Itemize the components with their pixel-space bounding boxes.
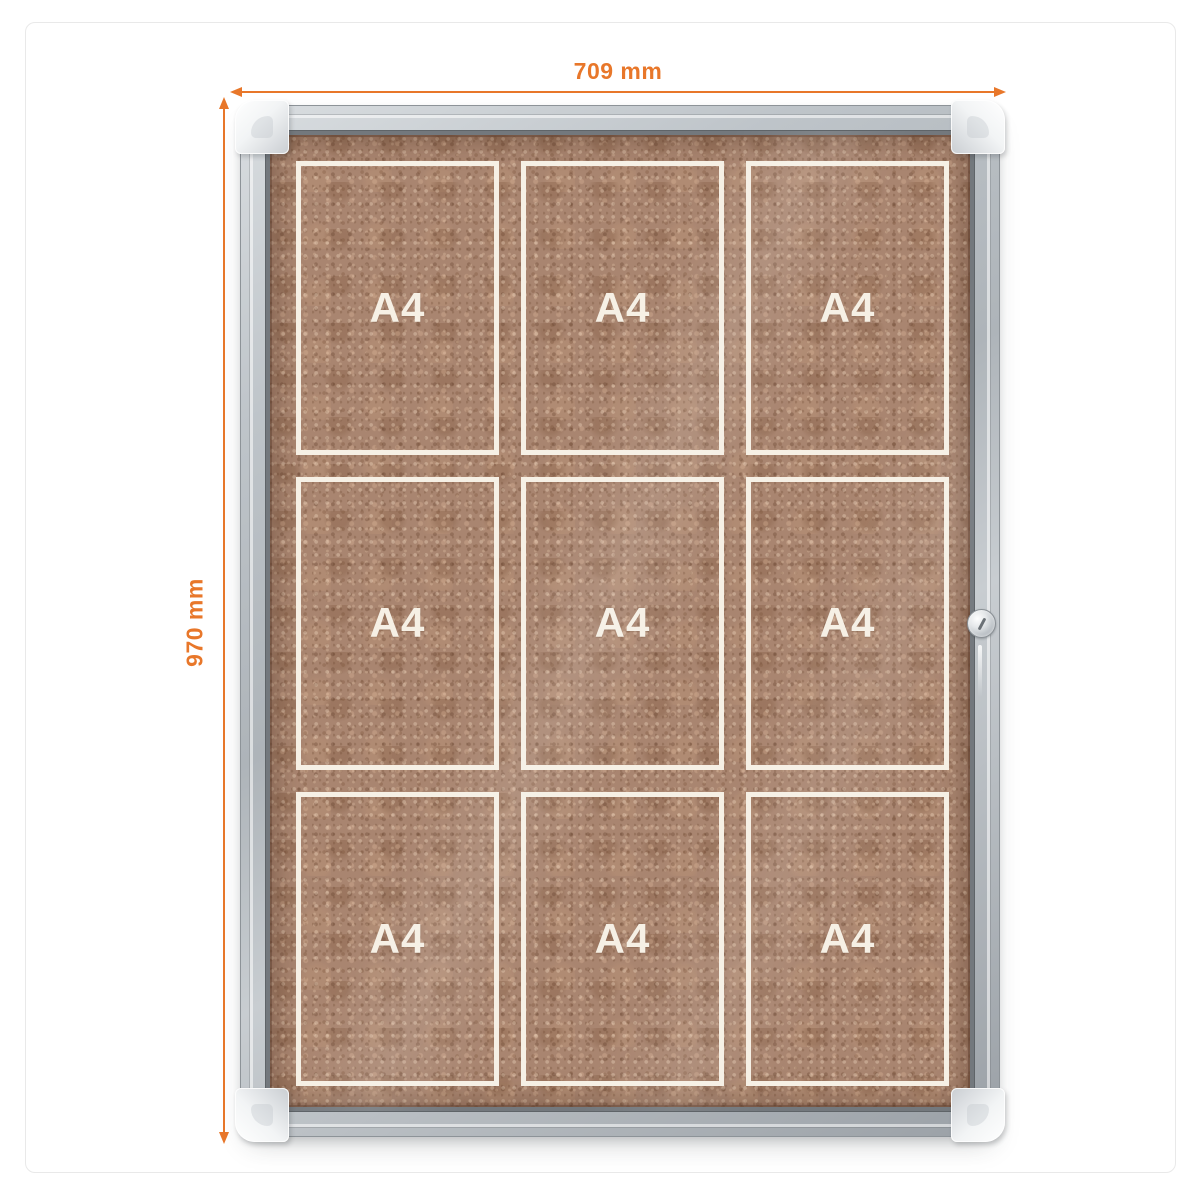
a4-label: A4 — [370, 915, 426, 963]
a4-label: A4 — [595, 915, 651, 963]
corner-cap-top-left — [235, 100, 289, 154]
product-image: 709 mm 970 mm A4 A4 A4 A4 A4 A4 A4 A4 A4 — [0, 0, 1200, 1200]
a4-slot: A4 — [746, 477, 949, 771]
corner-cap-top-right — [951, 100, 1005, 154]
a4-label: A4 — [595, 599, 651, 647]
a4-slot: A4 — [521, 792, 724, 1086]
height-dimension-label: 970 mm — [182, 543, 209, 703]
a4-grid: A4 A4 A4 A4 A4 A4 A4 A4 A4 — [296, 161, 949, 1086]
cork-surface: A4 A4 A4 A4 A4 A4 A4 A4 A4 — [270, 135, 970, 1107]
height-dimension-line — [223, 108, 225, 1133]
a4-slot: A4 — [746, 161, 949, 455]
a4-label: A4 — [370, 599, 426, 647]
corner-cap-bottom-right — [951, 1088, 1005, 1142]
lock — [967, 609, 996, 638]
a4-label: A4 — [820, 915, 876, 963]
notice-board: A4 A4 A4 A4 A4 A4 A4 A4 A4 — [240, 105, 1000, 1137]
arrow-right-icon — [994, 87, 1006, 97]
a4-label: A4 — [595, 284, 651, 332]
width-dimension-label: 709 mm — [240, 58, 996, 85]
a4-label: A4 — [820, 284, 876, 332]
arrow-up-icon — [219, 97, 229, 109]
a4-slot: A4 — [521, 161, 724, 455]
width-dimension-line — [241, 91, 995, 93]
a4-label: A4 — [820, 599, 876, 647]
arrow-left-icon — [230, 87, 242, 97]
a4-slot: A4 — [296, 792, 499, 1086]
a4-slot: A4 — [521, 477, 724, 771]
arrow-down-icon — [219, 1132, 229, 1144]
keyhole-icon — [977, 617, 986, 630]
a4-label: A4 — [370, 284, 426, 332]
corner-cap-bottom-left — [235, 1088, 289, 1142]
a4-slot: A4 — [296, 477, 499, 771]
a4-slot: A4 — [296, 161, 499, 455]
lock-reflection — [978, 645, 982, 697]
a4-slot: A4 — [746, 792, 949, 1086]
